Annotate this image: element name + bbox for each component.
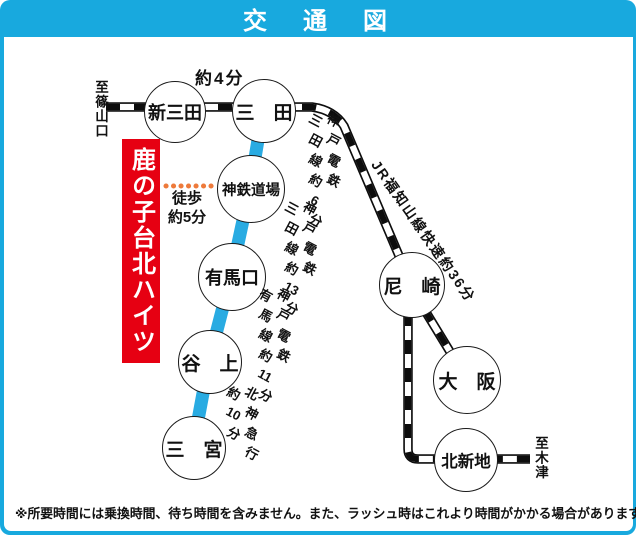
footnote-text: ※所要時間には乗換時間、待ち時間を含みません。また、ラッシュ時はこれより時間がか… — [15, 503, 636, 522]
walk-time-label: 徒歩 約5分 — [156, 190, 218, 228]
station-osaka: 大 阪 — [433, 346, 501, 414]
station-sannomiya: 三 宮 — [162, 416, 226, 480]
header-bar: 交 通 図 — [0, 0, 636, 37]
station-shintetsu-dojo: 神鉄道場 — [217, 155, 285, 223]
sanda-interval-label: 約4分 — [195, 64, 244, 89]
to-sasayamaguchi-label: 至篠山口 — [90, 80, 110, 138]
traffic-map-card: 交 通 図 新三田 三 田 神鉄道場 有馬口 谷 上 三 宮 尼 崎 大 阪 — [0, 0, 636, 535]
page-title: 交 通 図 — [243, 1, 393, 36]
to-kizu-label: 至木津 — [530, 436, 550, 480]
jr-line-osaka — [424, 309, 452, 355]
station-kitashinchi: 北新地 — [434, 428, 498, 492]
station-shin-sanda: 新三田 — [144, 81, 206, 143]
kobe-arima-line-11min-label: 神戸電鉄有馬線約11分 — [256, 286, 292, 406]
hokushin-express-10min-label: 北神急行約10分 — [224, 384, 260, 464]
destination-banner: 鹿の子台北ハイツ — [122, 139, 160, 363]
